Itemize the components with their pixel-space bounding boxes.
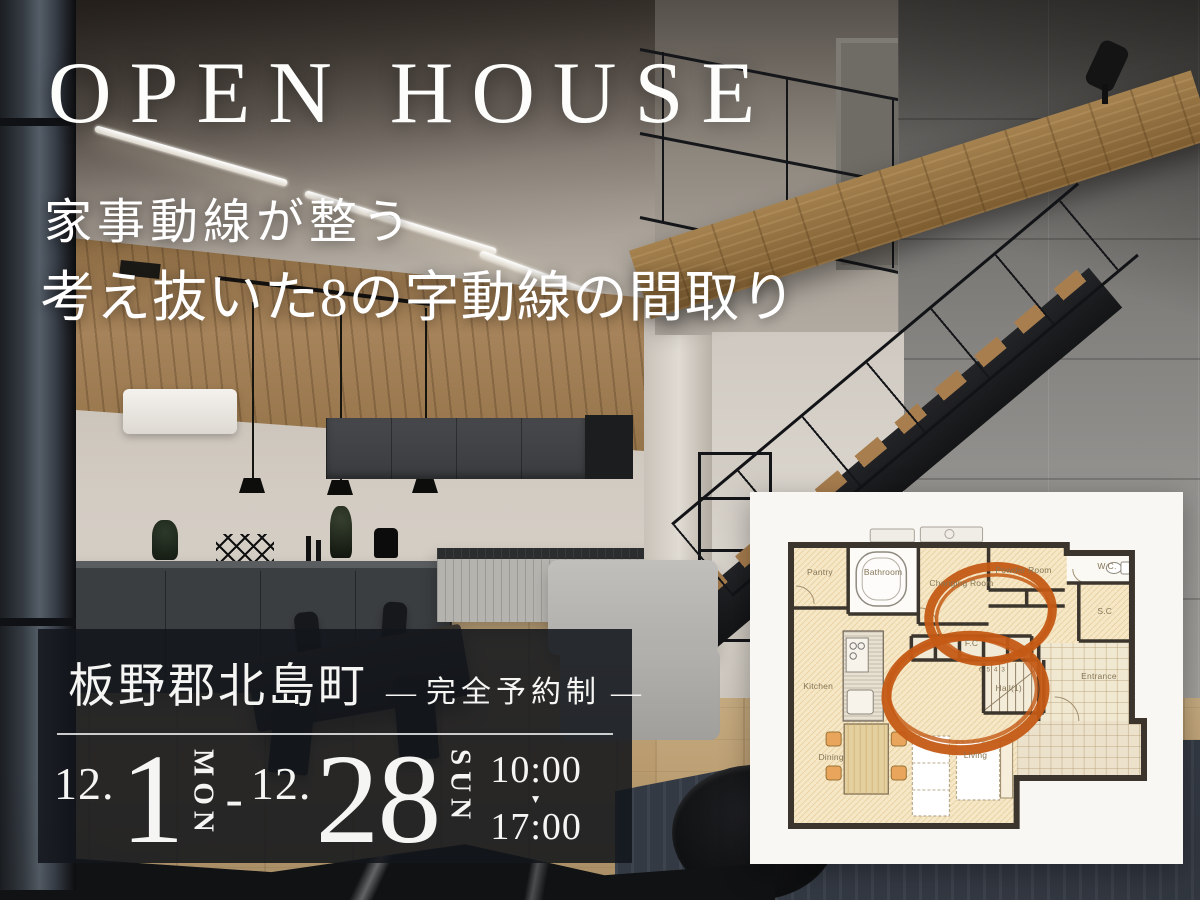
dash-left: —: [386, 676, 416, 710]
counter-plant: [330, 506, 352, 558]
reservation-note: 完全予約制: [426, 667, 601, 711]
dash-right: —: [611, 676, 641, 710]
start-day: 1: [121, 753, 183, 845]
start-month: 12.: [54, 757, 115, 810]
stair-step-numbers: 6 5 4 3: [979, 667, 1006, 674]
room-label-sc: S.C: [1097, 606, 1112, 616]
date-range-separator: -: [226, 770, 243, 829]
range-hood: [585, 415, 633, 479]
poster-title: OPEN HOUSE: [48, 50, 773, 138]
start-weekday: MON: [189, 749, 218, 849]
end-month: 12.: [251, 757, 312, 810]
room-label-kitchen: Kitchen: [803, 681, 833, 691]
catch-copy-line2: 考え抜いた8の字動線の間取り: [40, 252, 797, 332]
room-label-wc: W.C.: [1097, 561, 1116, 571]
room-label-hall: Hall(1): [996, 683, 1022, 693]
room-label-dining: Dining: [818, 752, 843, 762]
open-house-poster: OPEN HOUSE 家事動線が整う 考え抜いた8の字動線の間取り 板野郡北島町…: [0, 0, 1200, 900]
room-label-pantry: Pantry: [807, 567, 833, 577]
window-frame-bar: [0, 618, 76, 626]
room-label-entrance: Entrance: [1081, 671, 1117, 681]
spotlight-arm: [1102, 84, 1108, 104]
end-weekday: SUN: [445, 749, 474, 849]
room-label-bathroom: Bathroom: [864, 567, 902, 577]
bottle: [316, 540, 321, 561]
down-triangle-icon: ▼: [530, 793, 543, 805]
room-label-powder-room: Powder Room: [996, 565, 1052, 575]
floor-plan-drawing: Pantry Bathroom Changing Room Powder Roo…: [786, 526, 1147, 830]
event-info-box: 板野郡北島町 — 完全予約制 — 12. 1 MON - 12. 28 SUN …: [38, 629, 632, 863]
date-row: 12. 1 MON - 12. 28 SUN 10:00 ▼ 17:00: [38, 735, 632, 849]
kettle: [374, 528, 398, 558]
upper-kitchen-cabinets: [326, 418, 586, 479]
room-label-living: Living: [964, 750, 987, 760]
air-conditioner: [123, 389, 237, 434]
close-time: 17:00: [490, 808, 582, 847]
location-row: 板野郡北島町 — 完全予約制 —: [38, 629, 632, 716]
floor-plan-panel: Pantry Bathroom Changing Room Powder Roo…: [750, 492, 1183, 864]
time-range: 10:00 ▼ 17:00: [490, 751, 582, 847]
bottle: [306, 536, 311, 561]
event-location: 板野郡北島町: [68, 647, 368, 716]
end-day: 28: [315, 753, 439, 845]
counter-plant: [152, 520, 178, 560]
wine-rack: [216, 534, 274, 561]
room-label-changing-room: Changing Room: [929, 578, 993, 588]
room-label-fc: F.C: [965, 638, 978, 648]
open-time: 10:00: [490, 751, 582, 790]
catch-copy-line1: 家事動線が整う: [44, 182, 415, 252]
